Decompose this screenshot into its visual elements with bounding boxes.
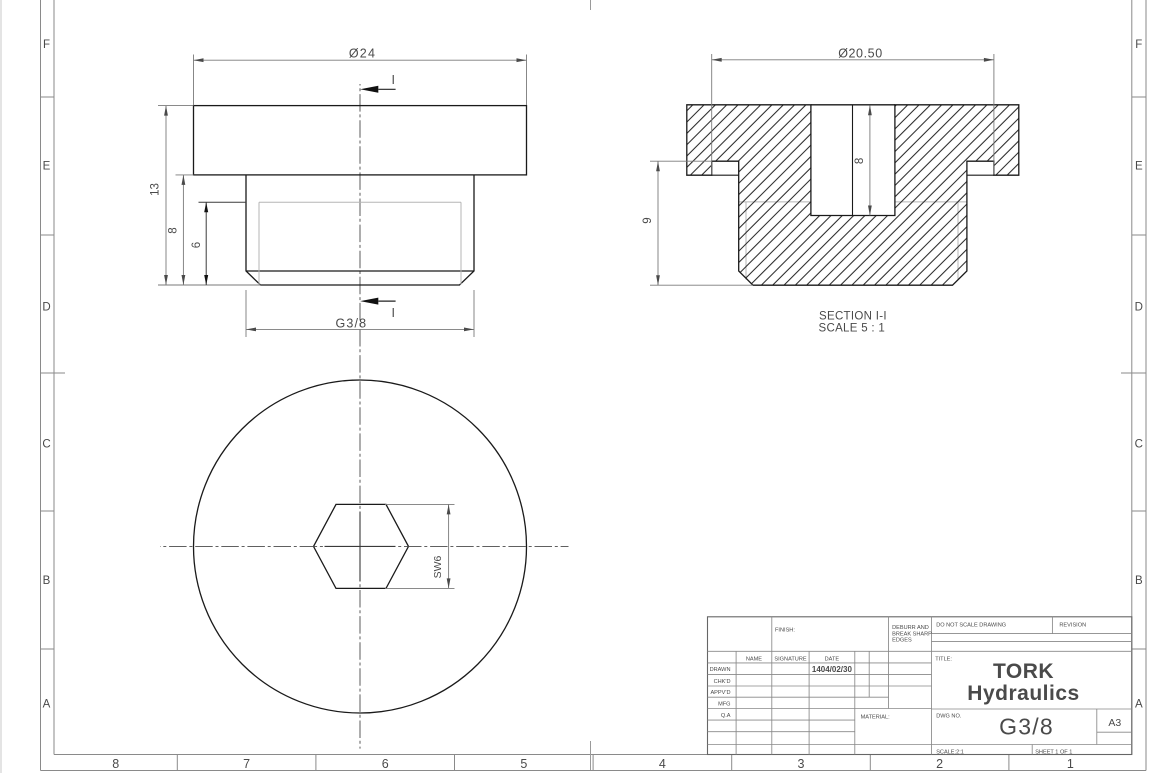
svg-text:6: 6 (382, 757, 389, 771)
svg-text:TITLE:: TITLE: (935, 657, 952, 663)
svg-text:Hydraulics: Hydraulics (967, 682, 1079, 705)
svg-text:TORK: TORK (993, 660, 1054, 683)
svg-text:8: 8 (854, 158, 866, 164)
svg-text:7: 7 (243, 757, 250, 771)
svg-text:SECTION I-I: SECTION I-I (819, 310, 887, 322)
svg-text:E: E (1135, 161, 1143, 173)
svg-text:D: D (1135, 302, 1143, 314)
svg-text:EDGES: EDGES (892, 638, 912, 644)
svg-text:A: A (43, 699, 51, 711)
svg-text:MATERIAL:: MATERIAL: (861, 714, 891, 720)
svg-text:G3/8: G3/8 (999, 714, 1054, 740)
svg-text:3: 3 (798, 757, 805, 771)
svg-text:Ø24: Ø24 (349, 47, 376, 61)
svg-text:13: 13 (150, 183, 162, 196)
svg-text:A: A (1135, 699, 1143, 711)
svg-text:6: 6 (191, 242, 203, 248)
svg-text:I: I (391, 73, 394, 87)
svg-text:B: B (43, 575, 51, 587)
svg-text:1404/02/30: 1404/02/30 (812, 665, 853, 674)
svg-text:DRAWN: DRAWN (710, 667, 731, 673)
svg-text:C: C (42, 439, 50, 451)
svg-text:MFG: MFG (718, 702, 730, 708)
svg-text:9: 9 (642, 217, 654, 223)
svg-text:A3: A3 (1108, 717, 1121, 729)
svg-text:B: B (1135, 575, 1143, 587)
svg-text:Q.A: Q.A (721, 713, 731, 719)
svg-text:DWG NO.: DWG NO. (936, 714, 962, 720)
svg-text:5: 5 (520, 757, 527, 771)
svg-text:8: 8 (112, 757, 119, 771)
svg-text:DO NOT SCALE DRAWING: DO NOT SCALE DRAWING (936, 622, 1006, 628)
svg-text:NAME: NAME (746, 657, 762, 663)
svg-text:4: 4 (659, 757, 666, 771)
svg-text:E: E (43, 161, 51, 173)
svg-text:Ø20.50: Ø20.50 (838, 47, 883, 61)
svg-text:SCALE 5 : 1: SCALE 5 : 1 (819, 322, 886, 334)
svg-text:CHK'D: CHK'D (714, 679, 731, 685)
svg-text:1: 1 (1067, 757, 1074, 771)
svg-text:F: F (1135, 39, 1142, 51)
svg-text:BREAK SHARP: BREAK SHARP (892, 631, 932, 637)
svg-text:SHEET 1 OF 1: SHEET 1 OF 1 (1035, 750, 1072, 756)
svg-text:SIGNATURE: SIGNATURE (774, 657, 806, 663)
svg-text:G3/8: G3/8 (335, 316, 367, 330)
svg-text:REVISION: REVISION (1059, 622, 1086, 628)
svg-text:DATE: DATE (825, 657, 840, 663)
svg-text:F: F (43, 39, 50, 51)
svg-text:D: D (42, 302, 50, 314)
svg-text:APPV'D: APPV'D (710, 690, 730, 696)
svg-text:I: I (391, 306, 394, 320)
svg-text:SCALE:2:1: SCALE:2:1 (936, 750, 964, 756)
svg-text:2: 2 (936, 757, 943, 771)
svg-text:8: 8 (168, 227, 180, 233)
svg-text:FINISH:: FINISH: (775, 628, 795, 634)
svg-text:SW6: SW6 (432, 555, 444, 578)
svg-text:C: C (1135, 439, 1143, 451)
svg-text:DEBURR AND: DEBURR AND (892, 625, 929, 631)
